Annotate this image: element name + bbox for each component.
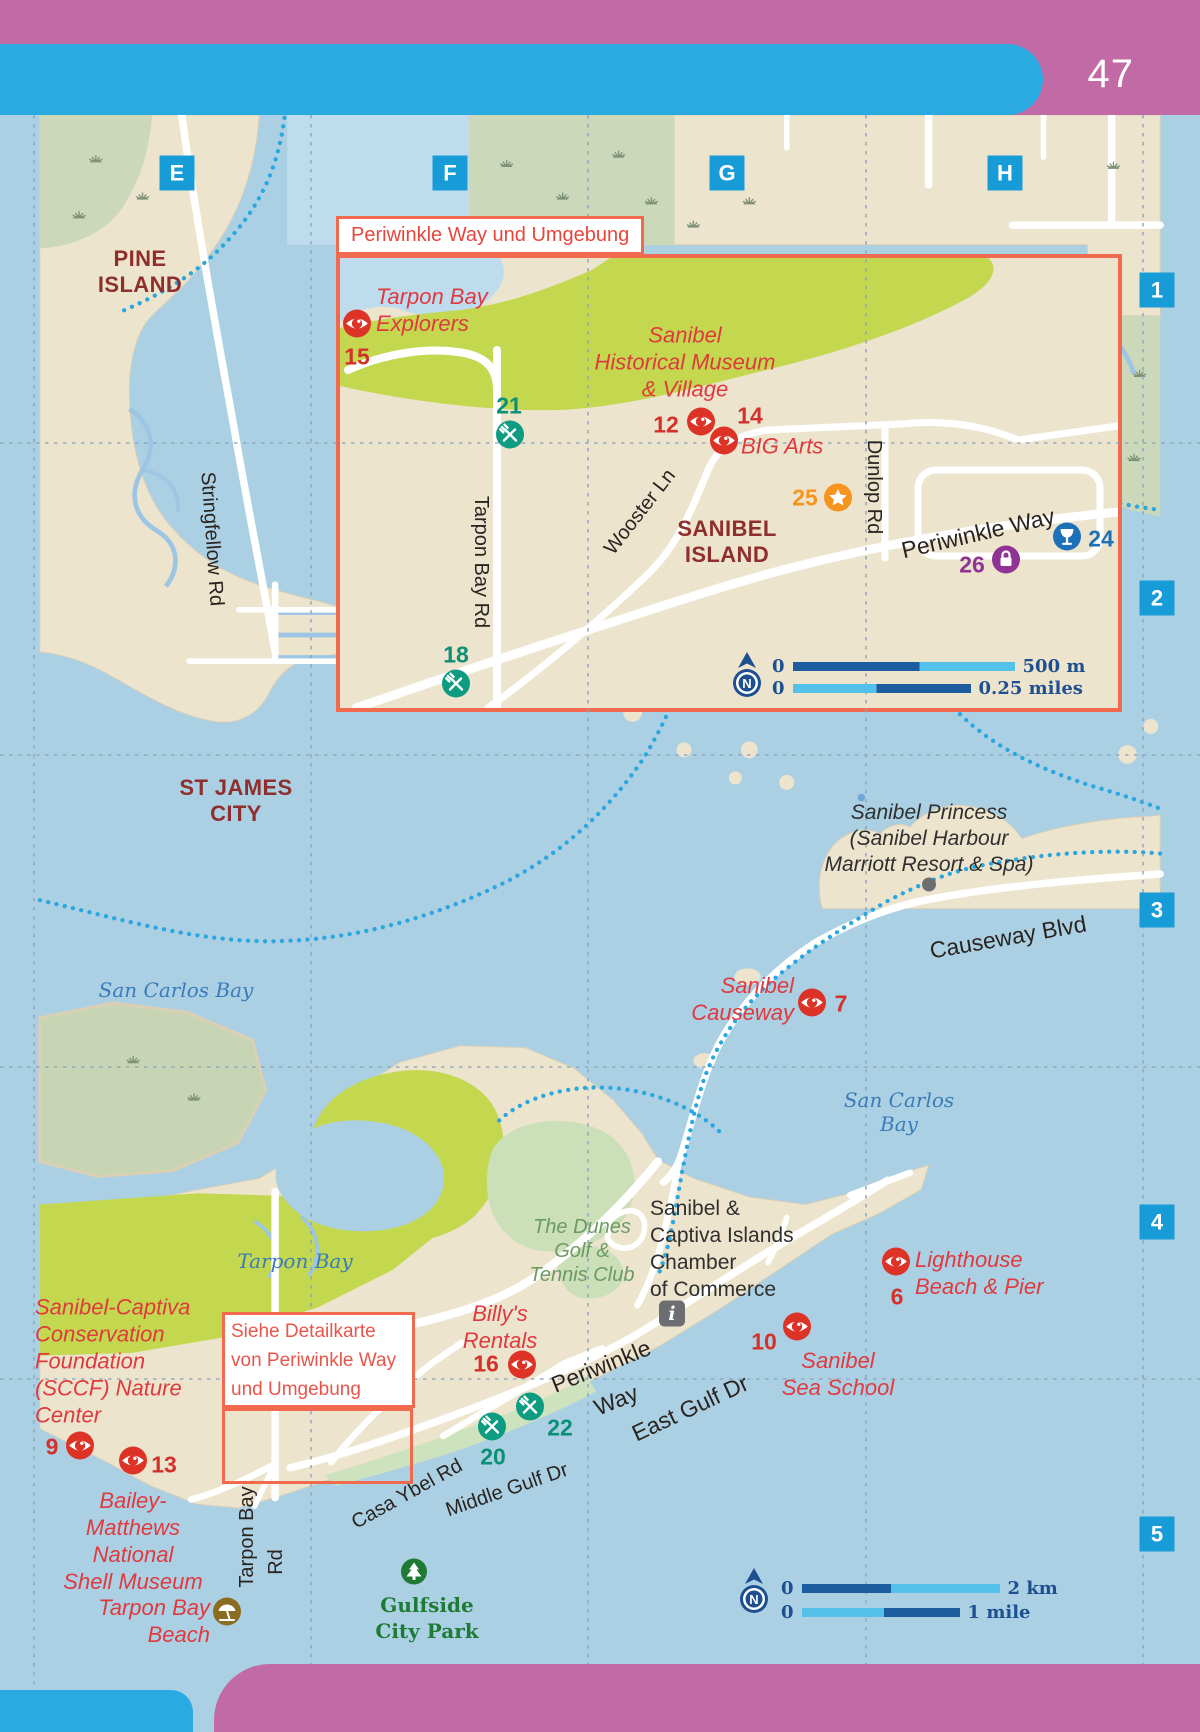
label-tarpon-bay-beach: Tarpon Bay Beach [98,1594,210,1648]
scale-bar [802,1584,1000,1593]
label-big-arts: BIG Arts [741,433,823,460]
scale-label: 2 km [1008,1578,1058,1599]
header-bar [0,44,1043,115]
marker-22-number: 22 [547,1415,573,1442]
marker-14-number: 14 [737,403,763,430]
marker-15-number: 15 [344,344,370,371]
scale-zero: 0 [772,678,785,699]
label-tarpon-bay: Tarpon Bay [237,1249,352,1273]
marker-26[interactable] [991,545,1021,580]
marker-10[interactable] [782,1312,812,1347]
map-scale-imperial: 0 1 mile [781,1602,1031,1623]
page-number: 47 [1088,52,1135,97]
marker-9-number: 9 [46,1434,59,1461]
grid-column-G: G [710,156,745,191]
label-east-gulf-dr: East Gulf Dr [629,1372,752,1445]
label-sccf: Sanibel-Captiva Conservation Foundation … [35,1294,190,1429]
marker-6[interactable] [881,1247,911,1282]
label-sanibel-princess: Sanibel Princess (Sanibel Harbour Marrio… [825,800,1034,878]
label-historical-museum: Sanibel Historical Museum & Village [595,322,776,403]
label-san-carlos-bay-east: San Carlos Bay [844,1088,954,1136]
marker-25-number: 25 [792,485,818,512]
scale-label: 500 m [1023,656,1086,677]
grid-row-3: 3 [1140,893,1175,928]
label-tarpon-bay-rd-south: Tarpon Bay [236,1486,258,1587]
label-periwinkle-way-1: Periwinkle [548,1336,653,1396]
inset-scale-metric: 0 500 m [772,656,1085,677]
label-bailey-matthews: Bailey- Matthews National Shell Museum [63,1487,202,1595]
marker-6-number: 6 [891,1284,904,1311]
marker-22[interactable] [515,1392,545,1427]
label-lighthouse-beach: Lighthouse Beach & Pier [915,1246,1043,1300]
marker-26-number: 26 [959,552,985,579]
label-wooster-ln: Wooster Ln [600,465,680,559]
label-tarpon-bay-rd-inset: Tarpon Bay Rd [470,496,492,628]
icon-gulfside-tree[interactable] [400,1558,428,1591]
marker-7-number: 7 [835,991,848,1018]
marker-15[interactable] [342,309,372,344]
grid-column-H: H [988,156,1023,191]
grid-row-2: 2 [1140,581,1175,616]
scale-bar [793,662,1015,671]
marker-9[interactable] [65,1431,95,1466]
map-annotation-layer: Periwinkle Way und Umgebung Siehe Detail… [0,0,1200,1732]
marker-14[interactable] [709,426,739,461]
marker-24[interactable] [1052,522,1082,557]
label-sanibel-island: SANIBEL ISLAND [677,516,776,568]
scale-zero: 0 [781,1602,794,1623]
scale-label: 1 mile [968,1602,1031,1623]
label-billys-rentals: Billy's Rentals [463,1300,538,1354]
scale-bar [802,1608,960,1617]
grid-row-1: 1 [1140,273,1175,308]
label-periwinkle-way-2: Way [591,1381,641,1418]
icon-chamber-info[interactable]: i [659,1300,686,1332]
inset-title: Periwinkle Way und Umgebung [336,216,644,255]
marker-13-number: 13 [151,1452,177,1479]
label-san-carlos-bay-west: San Carlos Bay [99,978,254,1002]
label-sanibel-sea-school: Sanibel Sea School [782,1347,895,1401]
marker-20-number: 20 [480,1444,506,1471]
label-tarpon-bay-explorers: Tarpon Bay Explorers [376,283,488,337]
inset-compass-icon: N [730,650,764,705]
marker-7[interactable] [797,988,827,1023]
marker-24-number: 24 [1088,526,1114,553]
marker-10-number: 10 [751,1329,777,1356]
label-dunes-golf: The Dunes Golf & Tennis Club [530,1215,635,1287]
label-stringfellow-rd: Stringfellow Rd [196,471,227,607]
scale-zero: 0 [772,656,785,677]
marker-12-number: 12 [653,412,679,439]
marker-21[interactable] [495,420,525,455]
marker-16-number: 16 [473,1351,499,1378]
footer-band [214,1664,1200,1732]
svg-text:N: N [742,676,751,691]
icon-tarpon-bay-beach[interactable] [212,1597,242,1632]
marker-13[interactable] [118,1446,148,1481]
label-chamber-of-commerce: Sanibel & Captiva Islands Chamber of Com… [650,1195,794,1303]
marker-16[interactable] [507,1350,537,1385]
grid-row-4: 4 [1140,1205,1175,1240]
scale-label: 0.25 miles [979,678,1083,699]
marker-18[interactable] [441,669,471,704]
marker-20[interactable] [477,1412,507,1447]
grid-column-F: F [433,156,468,191]
label-st-james-city: ST JAMES CITY [179,775,292,827]
label-tarpon-bay-rd-south-2: Rd [265,1549,287,1575]
footer-bar-next [0,1690,193,1732]
guidebook-map-page: Periwinkle Way und Umgebung Siehe Detail… [0,0,1200,1732]
detail-note: Siehe Detailkarte von Periwinkle Way und… [222,1312,415,1408]
icon-princess-dot[interactable] [921,877,937,898]
label-sanibel-causeway: Sanibel Causeway [691,972,794,1026]
marker-18-number: 18 [443,642,469,669]
label-dunlop-rd: Dunlop Rd [863,440,885,535]
label-gulfside-city-park: Gulfside City Park [375,1592,478,1644]
map-scale-metric: 0 2 km [781,1578,1058,1599]
grid-row-5: 5 [1140,1517,1175,1552]
scale-zero: 0 [781,1578,794,1599]
svg-text:N: N [749,1592,758,1607]
inset-scale-imperial: 0 0.25 miles [772,678,1083,699]
marker-25[interactable] [823,483,853,518]
map-compass-icon: N [737,1566,771,1621]
detail-area-outline [222,1408,413,1484]
marker-21-number: 21 [496,393,522,420]
svg-text:i: i [668,1303,675,1325]
scale-bar [793,684,971,693]
grid-column-E: E [160,156,195,191]
label-causeway-blvd: Causeway Blvd [928,912,1088,961]
label-pine-island: PINE ISLAND [98,246,182,298]
